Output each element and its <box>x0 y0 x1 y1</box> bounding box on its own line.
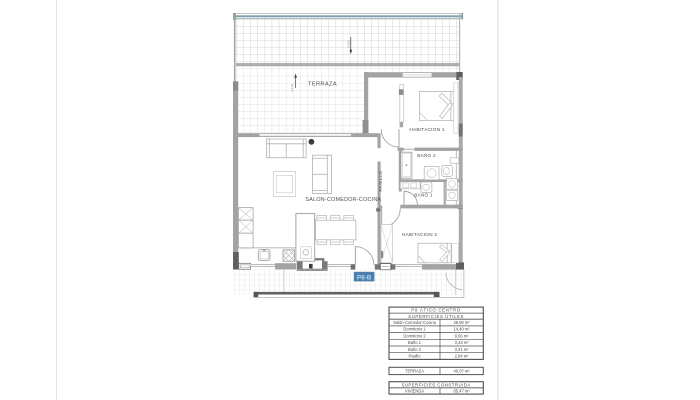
svg-text:85,47 m²: 85,47 m² <box>454 389 471 394</box>
svg-text:Baño 2: Baño 2 <box>408 347 422 352</box>
svg-text:HABITACION 2: HABITACION 2 <box>402 232 437 238</box>
svg-text:BAÑO 2: BAÑO 2 <box>417 152 436 158</box>
svg-text:SUPERFICIES CONSTRUIDA: SUPERFICIES CONSTRUIDA <box>401 382 470 387</box>
svg-text:P8-B: P8-B <box>357 275 372 282</box>
svg-text:Pasillo: Pasillo <box>408 354 421 359</box>
svg-text:TERRAZA: TERRAZA <box>405 369 424 374</box>
svg-text:VIVIENDA: VIVIENDA <box>405 389 424 394</box>
svg-text:Dormitorio 1: Dormitorio 1 <box>403 327 426 332</box>
svg-text:SUPERFICIES ÚTILES: SUPERFICIES ÚTILES <box>408 314 464 319</box>
svg-text:3,31 m²: 3,31 m² <box>455 347 470 352</box>
svg-text:2,94 m²: 2,94 m² <box>455 354 470 359</box>
svg-text:P8 ÁTICO CENTRO: P8 ÁTICO CENTRO <box>411 308 460 313</box>
svg-text:PASILLO: PASILLO <box>378 171 383 192</box>
svg-text:Salón-Comedor-Cocina: Salón-Comedor-Cocina <box>393 320 436 325</box>
svg-text:+/-1,00: +/-1,00 <box>347 40 351 49</box>
svg-text:HABITACION 1: HABITACION 1 <box>409 127 444 133</box>
svg-text:TERRAZA: TERRAZA <box>308 82 337 88</box>
svg-text:14,40 m²: 14,40 m² <box>454 327 471 332</box>
svg-text:SALON-COMEDOR-COCINA: SALON-COMEDOR-COCINA <box>305 197 381 203</box>
svg-text:Baño 1: Baño 1 <box>408 340 422 345</box>
svg-text:+/-1,00: +/-1,00 <box>290 83 294 92</box>
svg-text:39,80 m²: 39,80 m² <box>454 320 471 325</box>
svg-text:Dormitorio 2: Dormitorio 2 <box>403 333 426 338</box>
svg-text:46,07 m²: 46,07 m² <box>454 369 471 374</box>
svg-text:9,56 m²: 9,56 m² <box>455 333 470 338</box>
svg-text:3,43 m²: 3,43 m² <box>455 340 470 345</box>
